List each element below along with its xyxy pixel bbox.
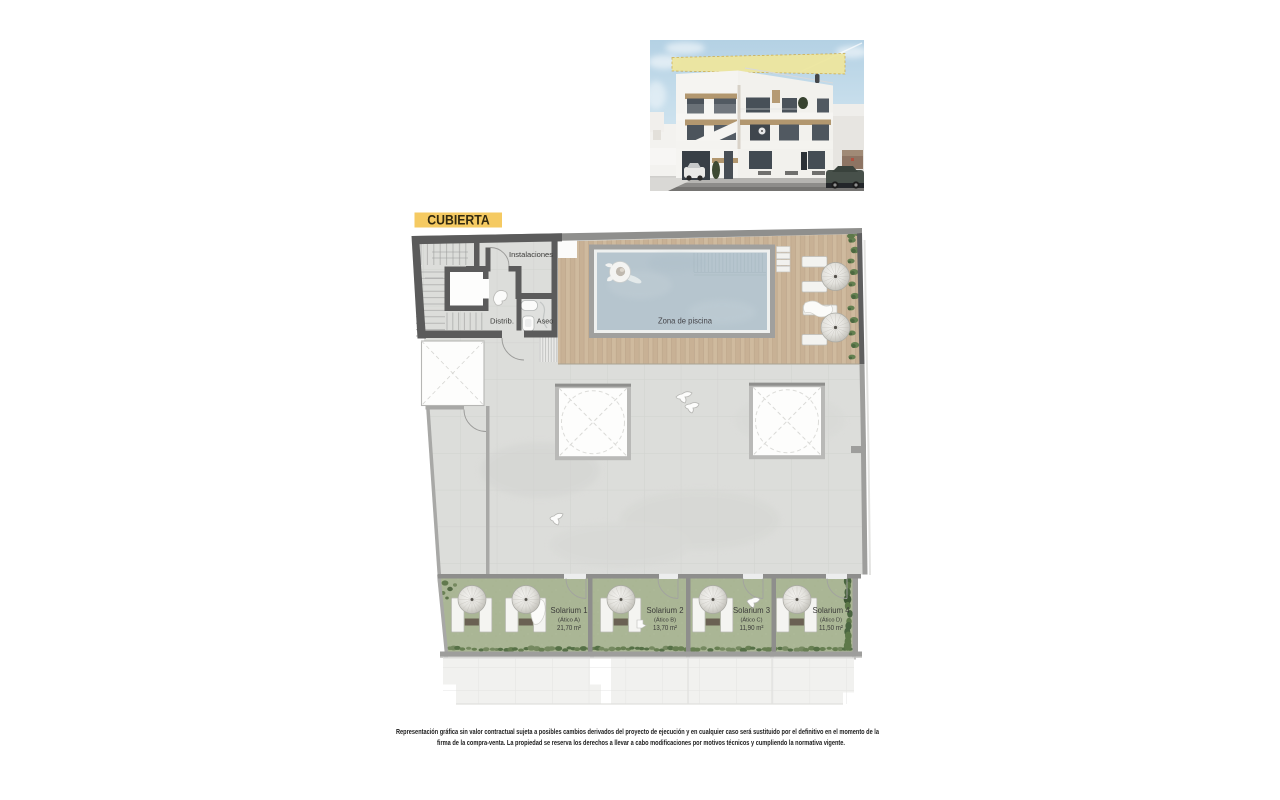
svg-text:11,50 m²: 11,50 m² [819, 623, 844, 632]
svg-text:Aseo: Aseo [537, 317, 554, 326]
svg-text:Instalaciones: Instalaciones [509, 250, 553, 259]
svg-text:Solarium 4: Solarium 4 [813, 606, 850, 615]
svg-text:Zona de piscina: Zona de piscina [658, 317, 712, 326]
svg-text:Solarium 3: Solarium 3 [733, 606, 770, 615]
svg-text:Representación gráfica sin val: Representación gráfica sin valor contrac… [396, 727, 880, 736]
svg-text:21,70 m²: 21,70 m² [557, 623, 582, 632]
svg-text:13,70 m²: 13,70 m² [653, 623, 678, 632]
svg-text:firma de la compra-venta. La p: firma de la compra-venta. La propiedad s… [437, 738, 845, 747]
svg-text:Distrib.: Distrib. [490, 317, 514, 326]
svg-text:Solarium 2: Solarium 2 [647, 606, 684, 615]
svg-text:11,90 m²: 11,90 m² [740, 623, 765, 632]
svg-text:CUBIERTA: CUBIERTA [427, 213, 490, 228]
svg-text:Solarium 1: Solarium 1 [551, 606, 588, 615]
